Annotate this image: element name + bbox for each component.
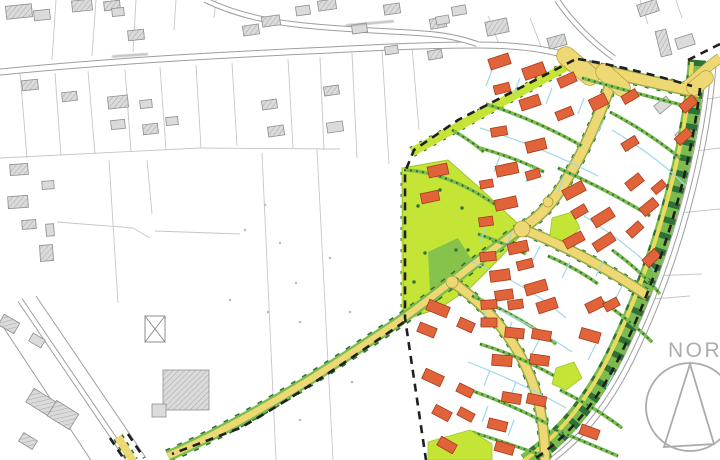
tree-lined-avenue bbox=[168, 228, 522, 456]
map-layers bbox=[0, 0, 720, 460]
site-plan-map: NORD bbox=[0, 0, 720, 460]
green-belt bbox=[522, 60, 697, 460]
crossed-box-symbol bbox=[145, 316, 165, 342]
compass-icon bbox=[646, 363, 720, 451]
site-plan-screenshot: NORD bbox=[0, 0, 720, 460]
street-label-illegible bbox=[346, 20, 394, 27]
north-arrow: NORD bbox=[646, 339, 720, 451]
park-and-green-strips bbox=[402, 62, 574, 320]
north-label: NORD bbox=[668, 339, 720, 362]
